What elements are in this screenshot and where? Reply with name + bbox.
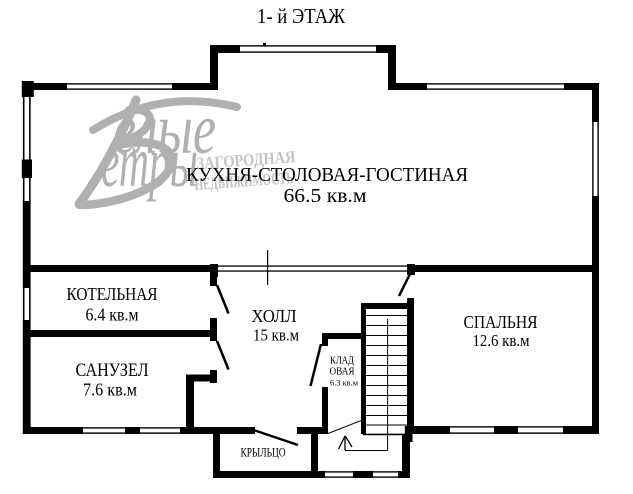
- svg-text:етры: етры: [101, 122, 198, 203]
- svg-text:1- й ЭТАЖ: 1- й ЭТАЖ: [257, 4, 345, 28]
- svg-text:6.3 кв.м: 6.3 кв.м: [330, 379, 358, 388]
- svg-text:ОВАЯ: ОВАЯ: [330, 366, 356, 378]
- svg-text:66.5 кв.м: 66.5 кв.м: [284, 185, 367, 207]
- svg-text:САНУЗЕЛ: САНУЗЕЛ: [76, 360, 149, 381]
- svg-text:СПАЛЬНЯ: СПАЛЬНЯ: [464, 312, 538, 332]
- svg-text:7.6 кв.м: 7.6 кв.м: [83, 380, 137, 400]
- svg-text:6.4 кв.м: 6.4 кв.м: [86, 305, 139, 325]
- svg-text:15 кв.м: 15 кв.м: [253, 326, 299, 345]
- svg-text:КОТЕЛЬНАЯ: КОТЕЛЬНАЯ: [67, 284, 158, 304]
- svg-text:12.6 кв.м: 12.6 кв.м: [473, 331, 530, 350]
- svg-text:КУХНЯ-СТОЛОВАЯ-ГОСТИНАЯ: КУХНЯ-СТОЛОВАЯ-ГОСТИНАЯ: [186, 164, 468, 186]
- svg-text:КРЫЛЬЦО: КРЫЛЬЦО: [241, 446, 286, 460]
- svg-text:ХОЛЛ: ХОЛЛ: [252, 306, 297, 326]
